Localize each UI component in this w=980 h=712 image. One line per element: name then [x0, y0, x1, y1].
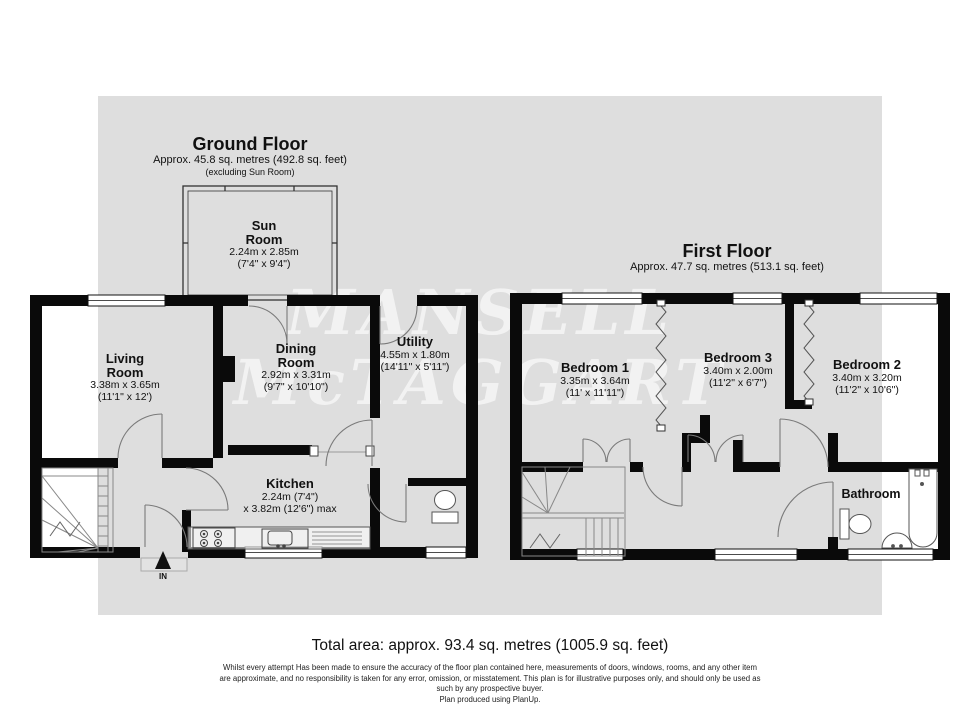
- disclaimer-line-1: Whilst every attempt Has been made to en…: [40, 663, 940, 674]
- bathtub-icon: [909, 469, 937, 547]
- kitchen-utility-door: [326, 420, 372, 466]
- room-label-kitchen: Kitchen 2.24m (7'4") x 3.82m (12'6") max: [243, 477, 336, 515]
- entry-door: [145, 505, 187, 547]
- ground-floor-title: Ground Floor: [153, 134, 347, 154]
- room-label-bedroom-3: Bedroom 3 3.40m x 2.00m (11'2" x 6'7"): [703, 351, 772, 389]
- first-floor-title: First Floor: [630, 241, 824, 261]
- ground-floor-note: (excluding Sun Room): [153, 167, 347, 178]
- basin-icon: [882, 533, 912, 548]
- bathroom-window: [848, 549, 933, 560]
- room-label-dining-room: Dining Room 2.92m x 3.31m (9'7" x 10'10"…: [261, 342, 330, 393]
- toilet-icon-first: [840, 509, 871, 539]
- first-floor-walls: [510, 293, 950, 560]
- ground-floor-area: Approx. 45.8 sq. metres (492.8 sq. feet): [153, 154, 347, 167]
- disclaimer-line-3: such by any prospective buyer.: [40, 684, 940, 695]
- disclaimer-block: Whilst every attempt Has been made to en…: [40, 663, 940, 705]
- disclaimer-line-2: are approximate, and no responsibility i…: [40, 674, 940, 685]
- entry-in-label: IN: [159, 572, 167, 581]
- bedroom2-door: [780, 419, 828, 467]
- room-label-sun-room: Sun Room 2.24m x 2.85m (7'4" x 9'4"): [229, 219, 298, 270]
- bathroom-door: [778, 482, 833, 537]
- first-floor-title-block: First Floor Approx. 47.7 sq. metres (513…: [630, 241, 824, 274]
- bedroom1-wardrobe-doors: [583, 439, 630, 462]
- living-room-window: [88, 295, 165, 306]
- room-label-bathroom: Bathroom: [841, 487, 900, 501]
- bathroom-fixtures: [840, 469, 937, 548]
- kitchen-fixtures: [188, 527, 370, 549]
- wc-window: [426, 547, 466, 558]
- sunroom-dining-door: [249, 306, 287, 344]
- toilet-icon-ground: [432, 491, 458, 524]
- landing-window: [577, 549, 623, 560]
- room-label-utility: Utility 4.55m x 1.80m (14'11" x 5'11"): [380, 335, 449, 373]
- total-area-text: Total area: approx. 93.4 sq. metres (100…: [312, 637, 669, 655]
- floorplan-page: MANSELL McTAGGART: [0, 0, 980, 712]
- ground-floor-title-block: Ground Floor Approx. 45.8 sq. metres (49…: [153, 134, 347, 178]
- bedroom3-window: [733, 293, 782, 304]
- living-room-door: [118, 414, 162, 458]
- hall-kitchen-door: [186, 468, 228, 510]
- room-label-bedroom-1: Bedroom 1 3.35m x 3.64m (11' x 11'11"): [560, 361, 629, 399]
- disclaimer-line-4: Plan produced using PlanUp.: [40, 695, 940, 706]
- bedroom1-door: [643, 467, 682, 506]
- dining-kitchen-opening: [310, 446, 374, 456]
- first-floor-plan: [510, 293, 950, 560]
- bedroom1-window: [562, 293, 642, 304]
- entry-marker: [141, 551, 187, 571]
- room-label-bedroom-2: Bedroom 2 3.40m x 3.20m (11'2" x 10'6"): [832, 358, 901, 396]
- hall-window: [715, 549, 797, 560]
- first-floor-area: Approx. 47.7 sq. metres (513.1 sq. feet): [630, 261, 824, 274]
- bedroom2-window: [860, 293, 937, 304]
- room-label-living-room: Living Room 3.38m x 3.65m (11'1" x 12'): [90, 352, 159, 403]
- ground-floor-stairs: [42, 468, 113, 552]
- first-floor-stairs: [522, 467, 625, 556]
